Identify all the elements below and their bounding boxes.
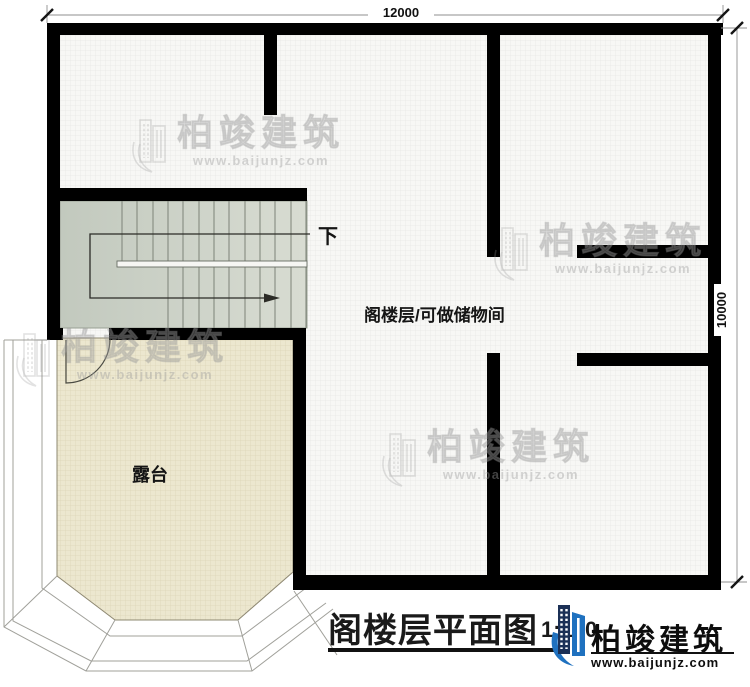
wall-stairs-top bbox=[47, 188, 307, 201]
stair-handrail bbox=[117, 261, 307, 267]
wall-interior-right-upper bbox=[577, 245, 708, 258]
wall-interior-center-upper bbox=[487, 35, 500, 257]
wall-interior-top-left bbox=[264, 35, 277, 115]
wall-interior-right-lower bbox=[577, 353, 708, 366]
wall-interior-center-lower bbox=[487, 353, 500, 575]
wall-exterior-left bbox=[47, 23, 60, 340]
wall-exterior-top bbox=[47, 23, 723, 35]
dimension-label-width: 12000 bbox=[368, 5, 434, 20]
floor-plan-drawing bbox=[0, 0, 750, 687]
terrace-floor bbox=[57, 338, 293, 620]
stair-down-label: 下 bbox=[318, 220, 338, 249]
dimension-label-height: 10000 bbox=[714, 284, 729, 336]
terrace-label: 露台 bbox=[132, 461, 168, 487]
wall-terrace-divider bbox=[293, 328, 306, 575]
wall-stairs-bottom-left bbox=[47, 328, 63, 340]
plan-canvas: 柏竣建筑 www.baijunjz.com 柏竣建筑 www.baijunjz.… bbox=[0, 0, 750, 687]
wall-exterior-bottom bbox=[293, 575, 721, 590]
attic-room-label: 阁楼层/可做储物间 bbox=[364, 301, 505, 326]
wall-stairs-bottom-right bbox=[109, 328, 306, 340]
